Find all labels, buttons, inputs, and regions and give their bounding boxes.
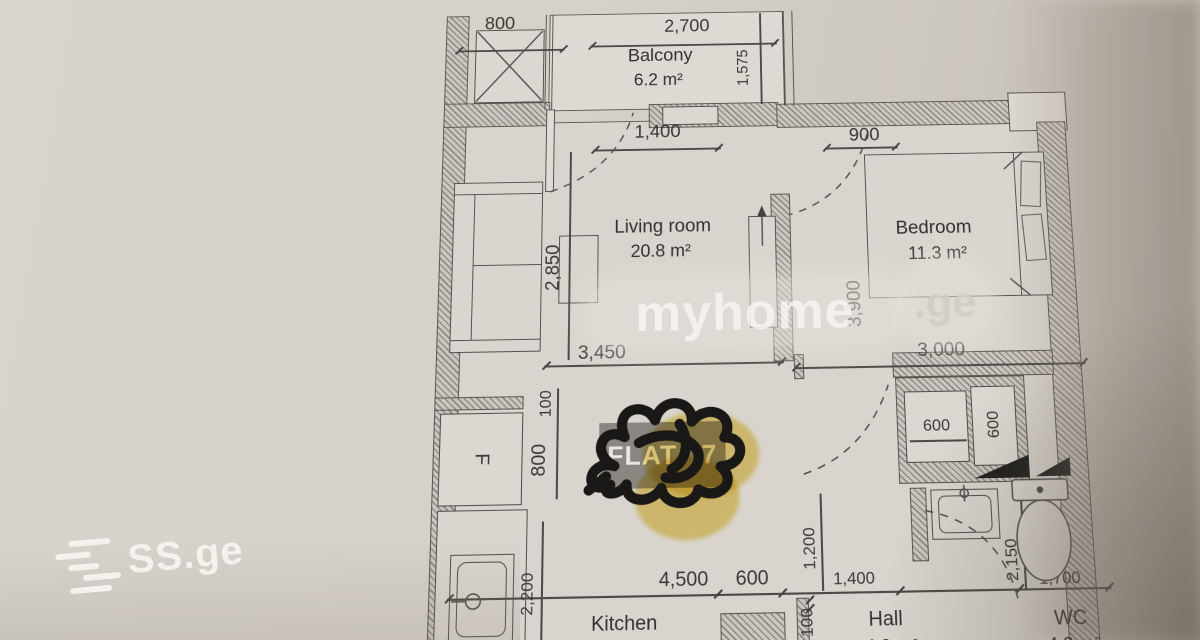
ssge-logo: SS.ge <box>45 515 261 609</box>
kitchen-label: Kitchen <box>591 612 657 637</box>
balcony-mullion <box>544 15 553 110</box>
dim-closet-d: 600 <box>985 411 1005 439</box>
dim-balcony-left: 800 <box>485 15 516 35</box>
floorplan-photo: F <box>0 0 1200 640</box>
dim-kitchen-depth: 2,200 <box>519 572 538 615</box>
wc-sink-basin <box>938 495 993 534</box>
balcony-label: Balcony <box>628 46 693 67</box>
ssge-logo-bar <box>70 585 112 595</box>
dim-wc-width: 1,700 <box>1039 569 1082 589</box>
dim-fridge-nook: 800 <box>528 444 551 477</box>
bedroom-label: Bedroom <box>895 217 972 239</box>
hall-area: 4.0 m² <box>865 635 919 640</box>
kitchen-partition <box>434 396 523 411</box>
dim-balcony-depth: 1,575 <box>735 49 753 86</box>
sofa-armrest-top <box>454 182 543 196</box>
dim-kitchen-width: 4,500 <box>659 568 709 592</box>
dim-wc-depth: 2,150 <box>1003 538 1024 581</box>
myhome-ge-watermark-text: .ge <box>912 278 978 328</box>
bedroom-top-wall <box>776 99 1038 127</box>
top-wall-left <box>443 102 550 128</box>
ssge-logo-bar <box>55 551 91 560</box>
sofa <box>449 182 543 354</box>
dim-kitchen-ext: 600 <box>736 567 769 591</box>
dim-balcony-door: 1,400 <box>634 122 680 143</box>
balcony-area: 6.2 m² <box>634 70 683 90</box>
wc-area: 4.3 m² <box>1047 633 1102 640</box>
dim-balcony-width: 2,700 <box>664 17 709 38</box>
fridge-label: F <box>469 453 492 465</box>
dim-bedroom-door: 900 <box>849 125 880 146</box>
wc-label: WC <box>1054 607 1089 631</box>
dim-closet-w: 600 <box>923 417 951 436</box>
living-room-label: Living room <box>614 216 711 239</box>
dim-hall-depth: 1,200 <box>801 527 821 570</box>
dim-hall-wall: 100 <box>799 608 819 637</box>
ssge-logo-bar <box>83 572 121 581</box>
shaft-box <box>474 29 545 103</box>
balcony-door-leaf <box>545 109 555 192</box>
hall-wc-wall <box>910 488 930 562</box>
kitchen-hall-pillar <box>720 612 786 640</box>
ssge-logo-bar <box>68 563 99 572</box>
myhome-watermark-text: myhome <box>635 281 855 344</box>
hall-label: Hall <box>868 608 903 632</box>
pillow <box>1020 161 1041 207</box>
ssge-logo-text: SS.ge <box>126 528 246 583</box>
dim-partition: 100 <box>537 390 556 417</box>
dim-living-height: 2,850 <box>543 244 565 291</box>
floorplan-drawing: F <box>379 6 1143 640</box>
living-room-area: 20.8 m² <box>631 241 691 262</box>
sofa-armrest-bottom <box>449 339 541 354</box>
dim-hall-width: 1,400 <box>833 570 875 590</box>
myhome-watermark: myhome <box>585 276 906 349</box>
ssge-logo-bar <box>68 538 110 548</box>
balcony-railing <box>782 11 795 106</box>
